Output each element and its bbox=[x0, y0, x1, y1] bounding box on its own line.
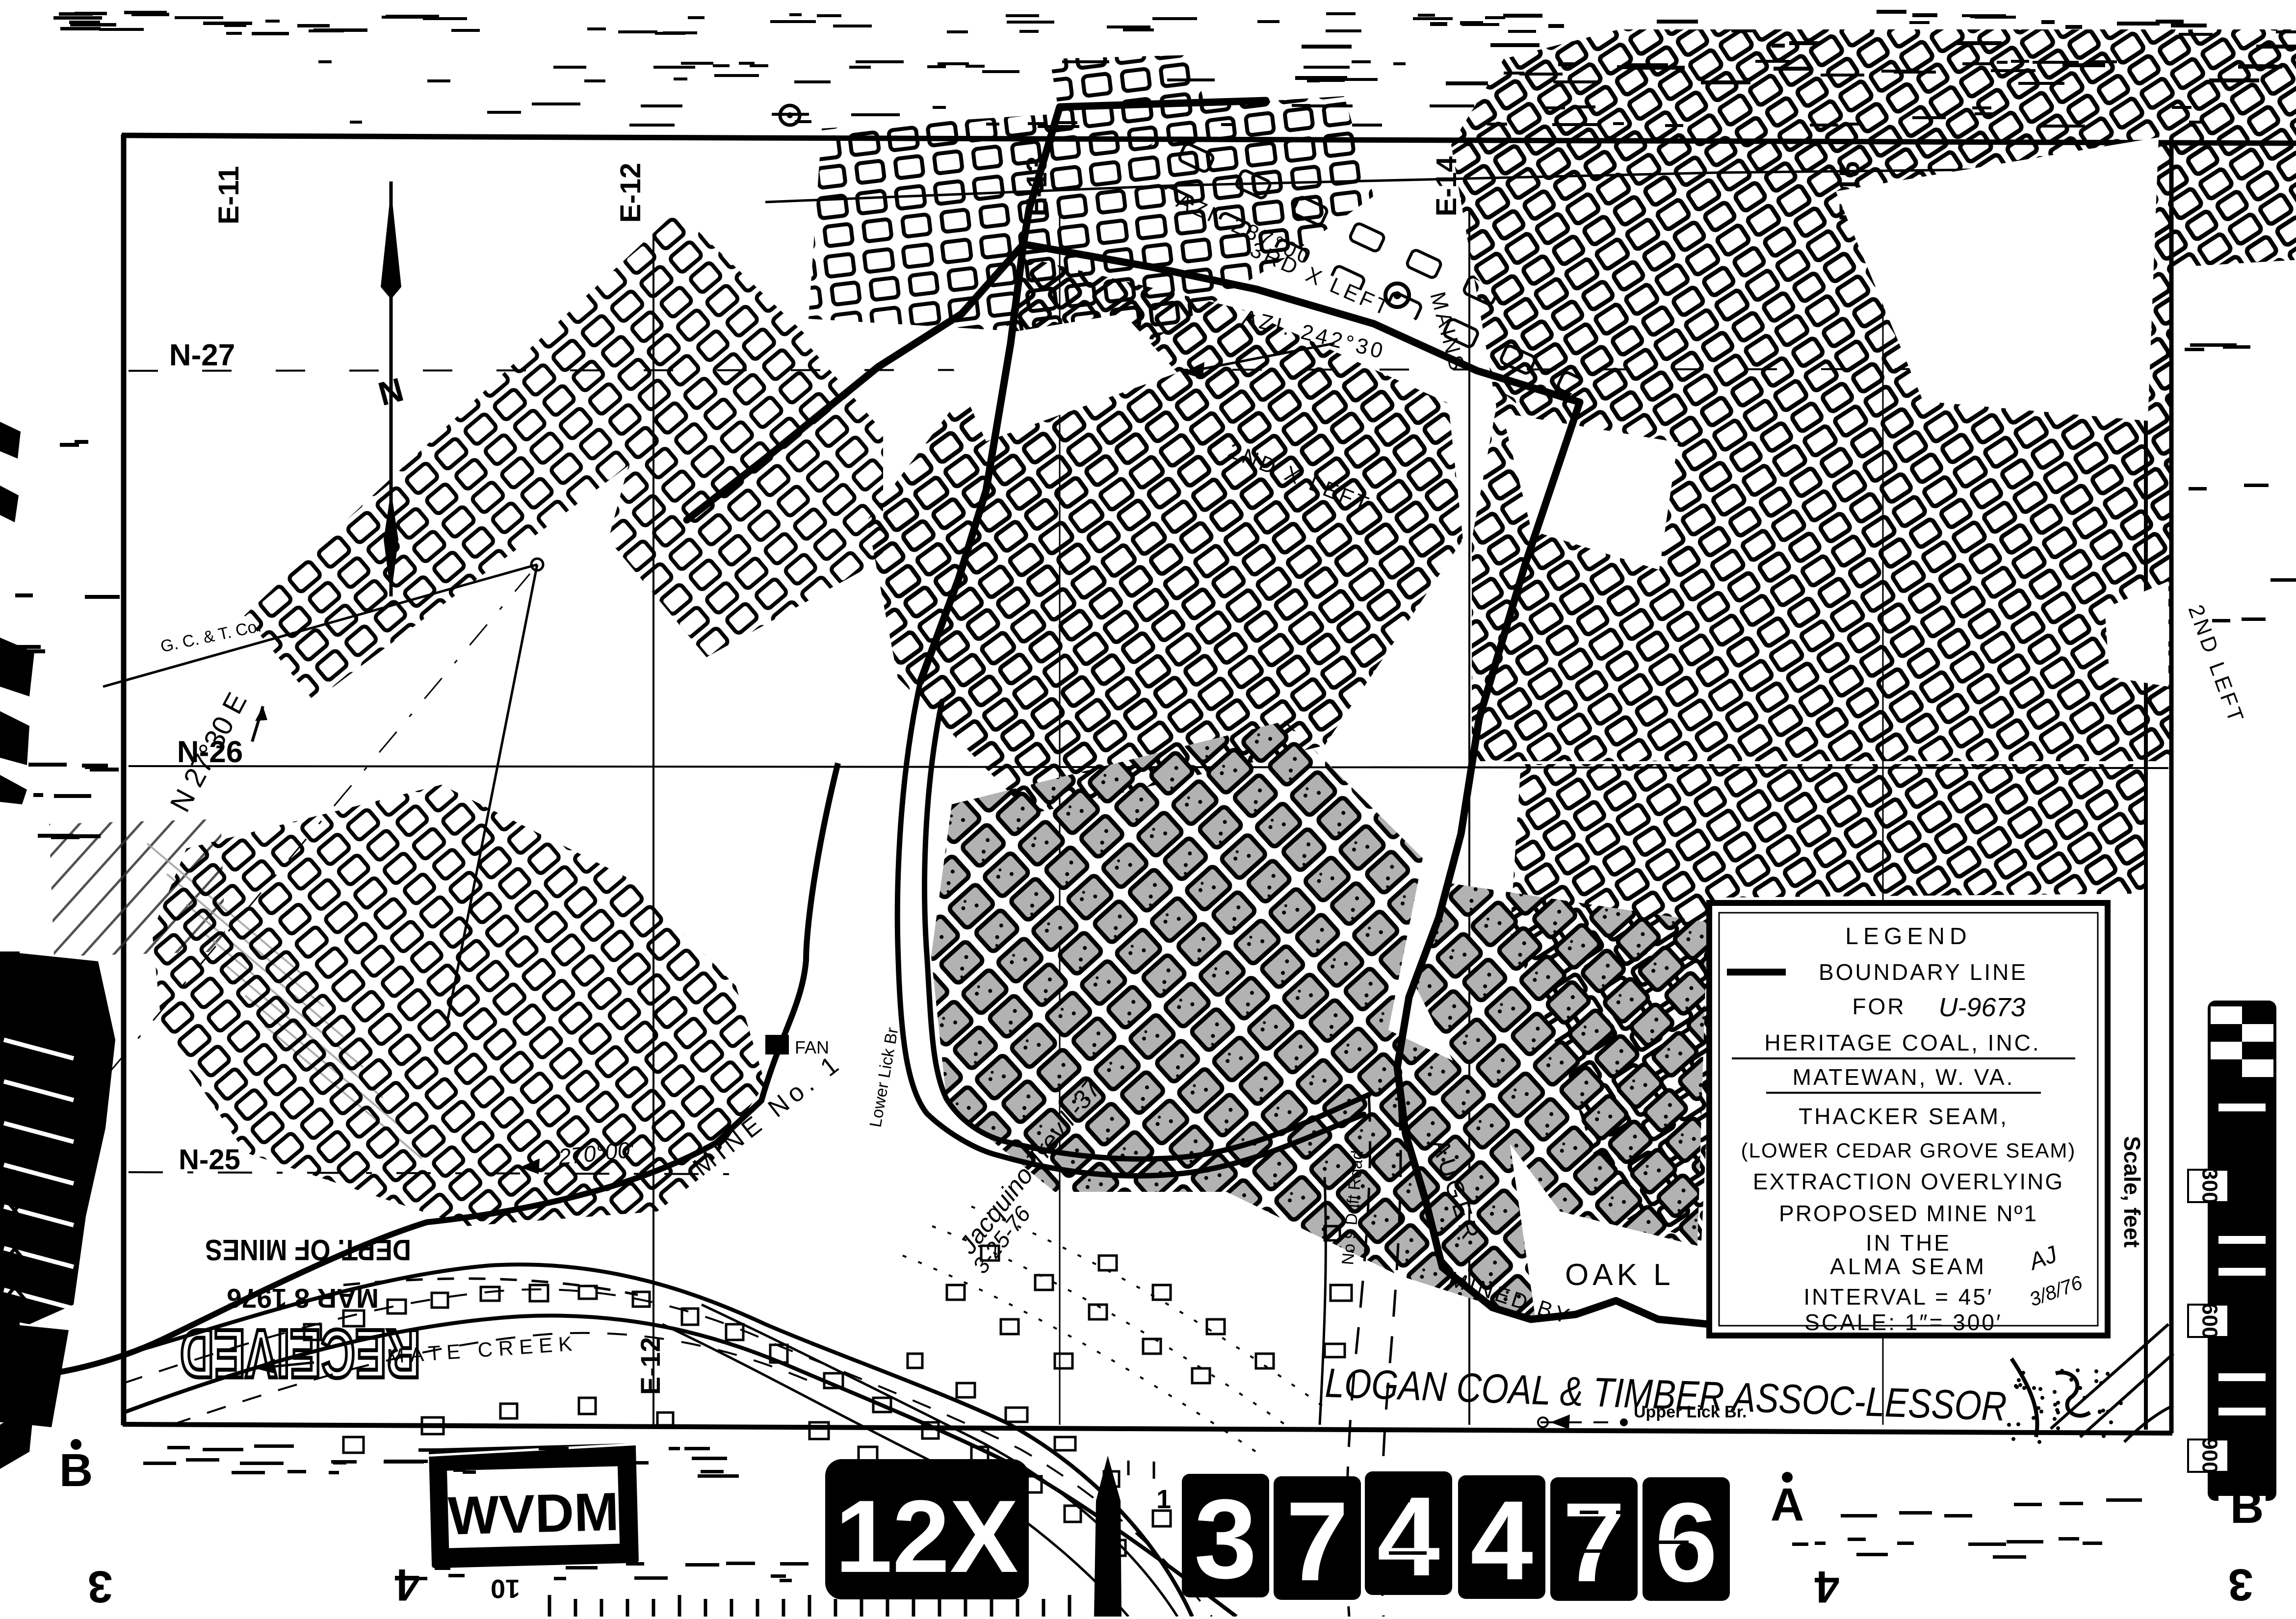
svg-text:Upper Lick Br.: Upper Lick Br. bbox=[1634, 1403, 1747, 1421]
svg-text:SCALE: 1″= 300′: SCALE: 1″= 300′ bbox=[1804, 1310, 2002, 1335]
svg-text:N: N bbox=[374, 371, 407, 413]
svg-text:(LOWER CEDAR GROVE SEAM): (LOWER CEDAR GROVE SEAM) bbox=[1741, 1139, 2076, 1162]
svg-text:4: 4 bbox=[1470, 1477, 1533, 1603]
svg-text:300: 300 bbox=[2197, 1168, 2221, 1204]
svg-text:MATEWAN, W. VA.: MATEWAN, W. VA. bbox=[1793, 1064, 2015, 1090]
svg-text:B: B bbox=[2230, 1481, 2264, 1533]
svg-text:IN THE: IN THE bbox=[1866, 1230, 1951, 1256]
svg-text:4: 4 bbox=[394, 1560, 419, 1610]
svg-text:MAR 8 1976: MAR 8 1976 bbox=[227, 1283, 379, 1314]
svg-text:PROPOSED MINE Nº1: PROPOSED MINE Nº1 bbox=[1779, 1201, 2038, 1226]
svg-text:E-11: E-11 bbox=[213, 166, 245, 224]
svg-text:900: 900 bbox=[2197, 1438, 2221, 1473]
svg-text:3: 3 bbox=[1194, 1476, 1257, 1602]
svg-text:G. C. & T. Co.: G. C. & T. Co. bbox=[159, 617, 263, 656]
svg-text:A: A bbox=[1771, 1479, 1804, 1531]
svg-text:ALMA SEAM: ALMA SEAM bbox=[1830, 1254, 1987, 1279]
svg-text:4: 4 bbox=[1377, 1473, 1440, 1599]
svg-text:HERITAGE COAL, INC.: HERITAGE COAL, INC. bbox=[1764, 1030, 2040, 1055]
svg-text:10: 10 bbox=[491, 1574, 520, 1603]
svg-text:3: 3 bbox=[87, 1562, 112, 1612]
svg-text:12X: 12X bbox=[835, 1479, 1018, 1594]
svg-text:FOR: FOR bbox=[1852, 994, 1905, 1019]
svg-text:E-12: E-12 bbox=[615, 163, 647, 223]
svg-text:EXTRACTION OVERLYING: EXTRACTION OVERLYING bbox=[1753, 1169, 2064, 1194]
svg-text:7: 7 bbox=[1563, 1479, 1625, 1605]
svg-text:OAK L: OAK L bbox=[1565, 1258, 1674, 1292]
svg-text:E-12: E-12 bbox=[635, 1337, 666, 1395]
svg-text:THACKER SEAM,: THACKER SEAM, bbox=[1799, 1104, 2009, 1129]
svg-text:Scale, feet: Scale, feet bbox=[2119, 1136, 2145, 1248]
svg-text:Lower Lick Br: Lower Lick Br bbox=[866, 1026, 902, 1129]
svg-text:3: 3 bbox=[2228, 1560, 2253, 1610]
svg-text:DEPT. OF MINES: DEPT. OF MINES bbox=[205, 1234, 411, 1266]
svg-text:RECEIVED: RECEIVED bbox=[180, 1315, 420, 1392]
svg-text:LEGEND: LEGEND bbox=[1845, 924, 1971, 950]
svg-text:1: 1 bbox=[1156, 1485, 1171, 1514]
svg-text:N-25: N-25 bbox=[179, 1144, 240, 1176]
svg-text:U-9673: U-9673 bbox=[1938, 993, 2025, 1022]
svg-text:N-27: N-27 bbox=[169, 338, 235, 372]
svg-text:INTERVAL = 45′: INTERVAL = 45′ bbox=[1803, 1284, 1993, 1310]
svg-text:WVDM: WVDM bbox=[447, 1481, 620, 1546]
svg-text:FAN: FAN bbox=[795, 1037, 829, 1057]
svg-text:600: 600 bbox=[2197, 1303, 2221, 1338]
svg-text:7: 7 bbox=[1286, 1478, 1349, 1604]
svg-text:BOUNDARY LINE: BOUNDARY LINE bbox=[1819, 959, 2028, 985]
svg-text:4: 4 bbox=[1814, 1562, 1839, 1612]
svg-text:B: B bbox=[59, 1444, 93, 1496]
